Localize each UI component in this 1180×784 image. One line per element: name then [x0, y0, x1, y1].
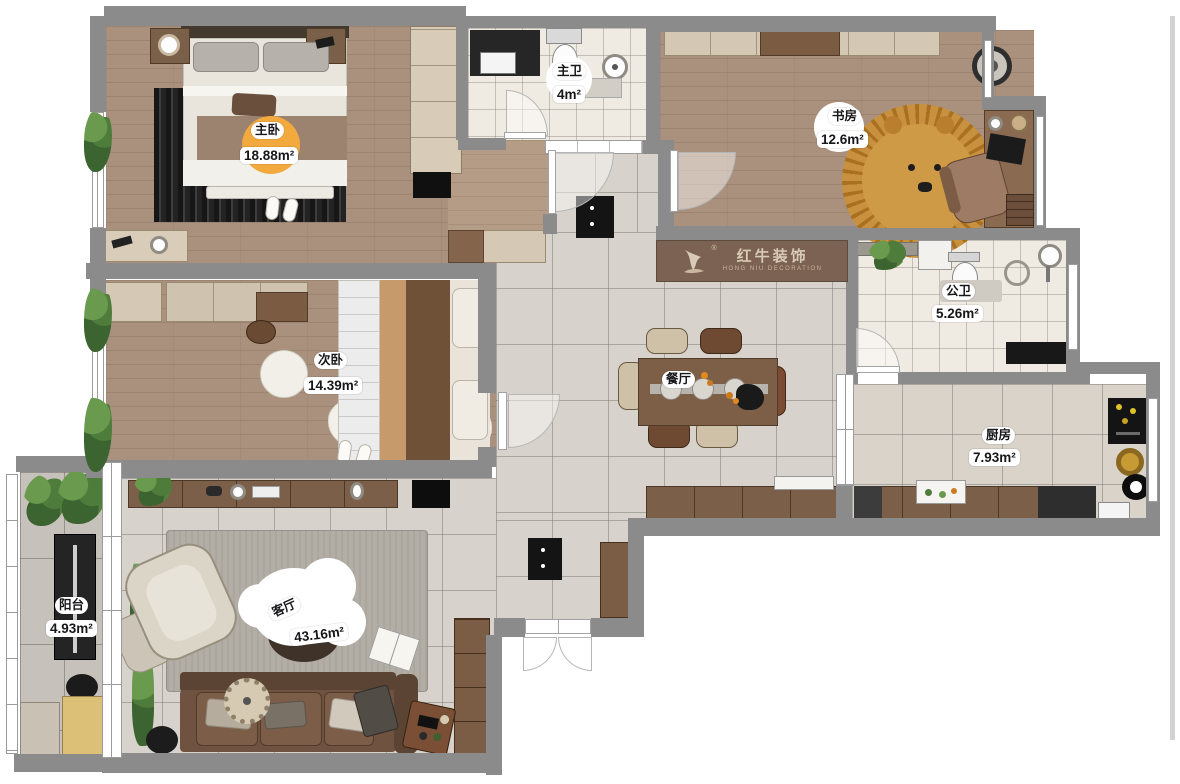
wall: [458, 138, 506, 150]
wall: [591, 618, 644, 637]
brand-name-en: HONG NIU DECORATION: [723, 266, 823, 273]
wall: [456, 26, 468, 140]
door-leaf: [548, 150, 556, 214]
desk-plate-icon: [1010, 114, 1028, 132]
study-label: 书房: [828, 108, 861, 125]
wall: [102, 753, 502, 773]
lion-nose-icon: [918, 182, 932, 192]
wall: [646, 16, 660, 142]
door-arc: [558, 637, 592, 671]
reg-mark: ®: [712, 245, 717, 252]
cooktop-handle: [1116, 432, 1140, 435]
mat-dot: [590, 222, 594, 226]
bath-cabinet: [918, 240, 952, 270]
fruit-dot: [726, 392, 733, 399]
round-rug: [260, 350, 308, 398]
wall: [86, 263, 496, 279]
window: [1148, 398, 1158, 502]
wall: [656, 226, 856, 240]
vegetable-dot: [939, 491, 946, 498]
wall: [90, 16, 106, 112]
wall: [104, 6, 466, 26]
dining-chair: [646, 328, 688, 354]
wall: [90, 228, 106, 280]
public-bath-area: 5.26m²: [932, 305, 983, 322]
mat-dot: [541, 548, 545, 552]
floor-pouf: [146, 726, 178, 754]
white-appliance: [774, 476, 834, 490]
master-bath-label: 主卫: [553, 63, 586, 80]
wall: [836, 486, 852, 520]
door-leaf: [856, 366, 900, 373]
study-cabinet-dark: [760, 30, 840, 56]
console-bowl: [206, 486, 222, 496]
remote-icon: [417, 715, 439, 730]
shower-dot: [612, 64, 618, 70]
sideboard: [646, 486, 838, 520]
study-area: 12.6m²: [817, 131, 868, 148]
second-bed-duvet: [338, 280, 380, 462]
floor-drain-icon: [1004, 260, 1030, 286]
master-bedroom-label: 主卧: [251, 122, 284, 139]
lion-ear-icon: [936, 116, 954, 134]
coaster: [438, 713, 451, 726]
door-leaf: [504, 132, 546, 139]
wall: [656, 16, 996, 32]
sofa-back: [180, 672, 396, 692]
dining-label: 餐厅: [662, 371, 695, 388]
vanity-mirror-icon: [150, 236, 168, 254]
cutting-board: [916, 480, 966, 504]
throw-cushion: [231, 93, 276, 117]
table-plant-icon: [736, 384, 764, 410]
vegetable-dot: [951, 488, 957, 494]
console-tray: [252, 486, 280, 498]
door-leaf: [670, 150, 678, 212]
kitchen-appliance: [1038, 486, 1096, 520]
brand-logo: ® 红牛装饰 HONG NIU DECORATION: [656, 240, 848, 282]
wok-icon: [1116, 448, 1144, 476]
wall: [628, 518, 1160, 536]
wall-tv: [412, 480, 450, 508]
storage-cabinet: [20, 702, 60, 756]
floor-plan: ® 红牛装饰 HONG NIU DECORATION 主卧 18.88m² 主卫…: [0, 0, 1180, 784]
master-bedroom-area: 18.88m²: [240, 147, 298, 164]
wall: [458, 16, 656, 28]
tall-cabinet: [454, 618, 490, 756]
doormat: [528, 538, 562, 580]
second-bed-blanket-tan: [380, 280, 406, 462]
wall: [898, 372, 1090, 384]
kitchen-area: 7.93m²: [969, 449, 1020, 466]
wall: [14, 754, 108, 772]
public-bath-label: 公卫: [942, 283, 975, 300]
door-leaf: [498, 392, 507, 450]
kitchen-counter-dark: [854, 486, 882, 520]
wall: [478, 447, 496, 467]
coaster: [418, 731, 427, 740]
second-bedroom-area: 14.39m²: [304, 377, 362, 394]
coaster: [433, 732, 442, 741]
sink: [480, 52, 516, 74]
wardrobe: [410, 26, 462, 174]
kitchen-label: 厨房: [982, 427, 1015, 444]
hongniu-bull-icon: [682, 248, 706, 274]
second-bedroom-label: 次卧: [314, 352, 347, 369]
toilet-tank: [948, 252, 980, 262]
wood-side-table: [402, 700, 457, 757]
neighbor-wall-line: [1170, 16, 1175, 740]
tv-panel: [413, 172, 451, 198]
balcony-window: [6, 474, 18, 754]
table-center: [243, 697, 251, 705]
second-bed-blanket-brown: [406, 280, 450, 462]
lion-ear-icon: [884, 116, 902, 134]
door-arc: [523, 637, 557, 671]
mat-dot: [541, 564, 545, 568]
desk-drawer: [1006, 194, 1034, 226]
table-lamp-icon: [158, 34, 180, 56]
balcony-label: 阳台: [55, 597, 88, 614]
flame-dot: [1116, 404, 1122, 410]
armchair-cushion: [141, 559, 222, 647]
kettle-center: [1130, 481, 1142, 493]
flame-dot: [1130, 408, 1136, 414]
flame-dot: [1122, 418, 1128, 424]
garnish-dot: [701, 372, 708, 379]
shower-head-icon: [1038, 244, 1062, 268]
console-plate-icon: [230, 484, 246, 500]
balcony-area: 4.93m²: [46, 620, 97, 637]
pillow: [193, 42, 259, 72]
window: [1068, 264, 1078, 350]
cooktop: [1108, 398, 1148, 444]
lion-eye-icon: [908, 164, 915, 171]
garnish-dot: [707, 380, 713, 386]
vegetable-dot: [925, 489, 932, 496]
wall: [478, 279, 496, 393]
window: [1036, 116, 1044, 226]
wall: [846, 228, 1080, 240]
french-door: [525, 619, 591, 634]
coffee-cup-icon: [988, 116, 1003, 131]
fruit-dot: [733, 398, 739, 404]
kitchen-sliding-door: [836, 374, 854, 486]
small-desk: [256, 292, 308, 322]
nook-cabinet: [600, 542, 630, 618]
bath-bench: [1006, 342, 1070, 364]
shower-stem: [1046, 266, 1050, 282]
vase-icon: [350, 482, 364, 500]
dining-chair: [700, 328, 742, 354]
window: [984, 40, 992, 98]
wall: [86, 460, 492, 478]
master-bath-area: 4m²: [553, 86, 585, 103]
stool: [246, 320, 276, 344]
toilet-tank: [546, 28, 582, 44]
wall: [543, 214, 557, 234]
book-spine: [388, 634, 399, 667]
brand-name: 红牛装饰: [737, 249, 809, 264]
mat-dot: [590, 206, 594, 210]
corridor-cabinet-dark: [448, 230, 484, 263]
balcony-glass-door: [102, 462, 122, 758]
